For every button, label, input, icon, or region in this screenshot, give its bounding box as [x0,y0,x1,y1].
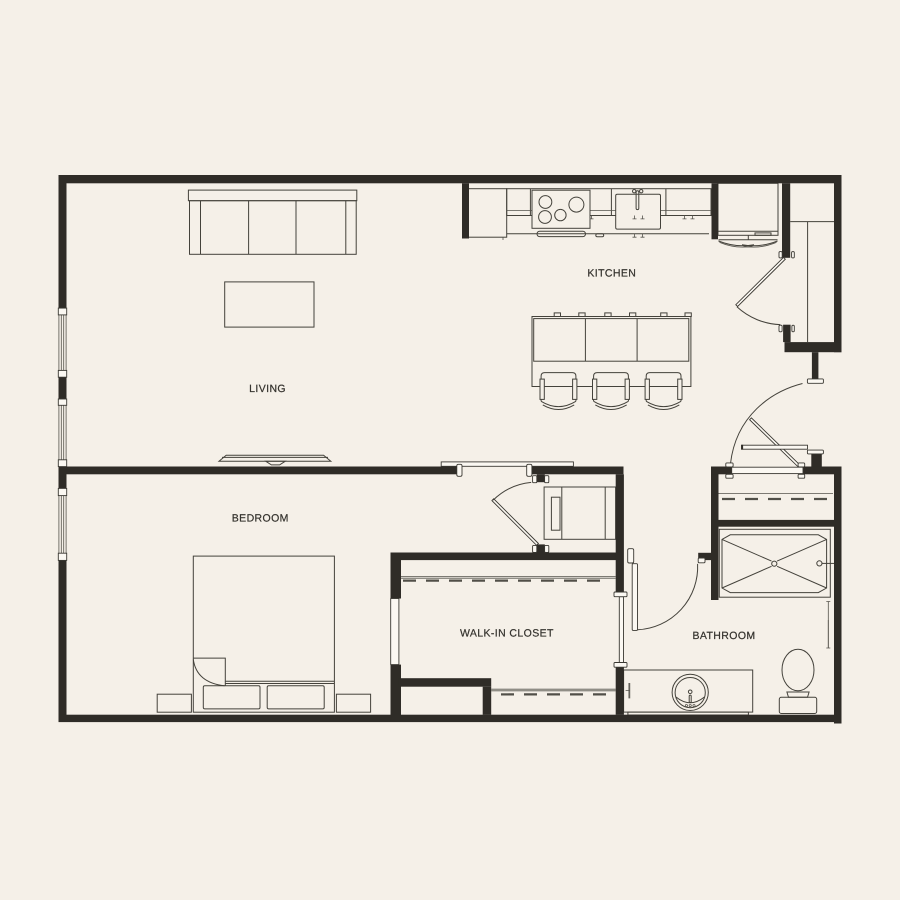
svg-text:KITCHEN: KITCHEN [587,268,636,280]
svg-text:LIVING: LIVING [249,383,286,395]
svg-text:BEDROOM: BEDROOM [232,513,289,525]
svg-text:BATHROOM: BATHROOM [692,630,755,642]
svg-text:WALK-IN CLOSET: WALK-IN CLOSET [460,628,554,640]
